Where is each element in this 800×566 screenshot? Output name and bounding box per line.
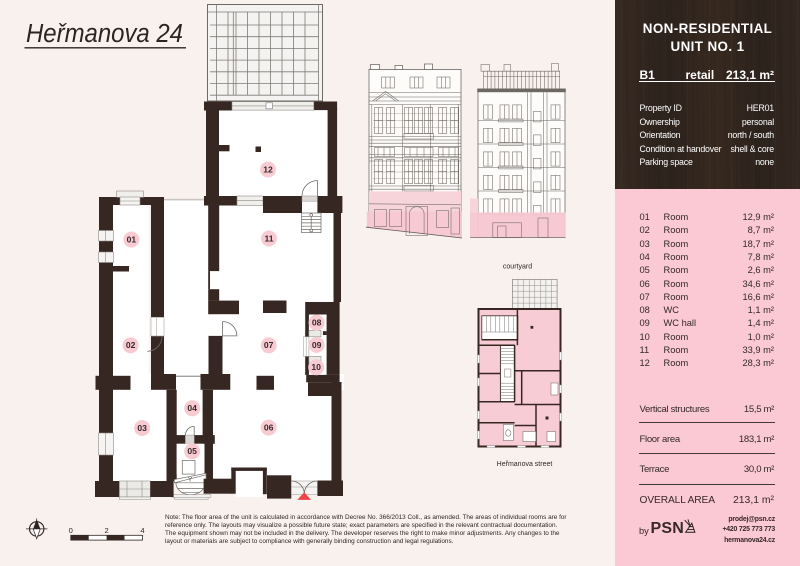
svg-text:03: 03	[137, 423, 147, 433]
svg-text:Heřmanova 24: Heřmanova 24	[26, 20, 183, 48]
svg-text:4: 4	[140, 526, 144, 535]
svg-text:05: 05	[187, 446, 197, 456]
svg-text:2: 2	[104, 526, 108, 535]
svg-text:12: 12	[263, 164, 273, 174]
svg-text:09: 09	[312, 340, 322, 350]
svg-text:Y: Y	[188, 477, 193, 484]
svg-text:04: 04	[187, 403, 197, 413]
svg-text:08: 08	[312, 318, 322, 328]
svg-text:Heřmanova street: Heřmanova street	[497, 461, 553, 468]
svg-text:02: 02	[126, 340, 136, 350]
svg-text:01: 01	[127, 234, 137, 244]
svg-text:10: 10	[311, 362, 321, 372]
svg-text:courtyard: courtyard	[503, 264, 532, 271]
svg-text:06: 06	[264, 423, 274, 433]
svg-text:07: 07	[264, 340, 274, 350]
svg-text:11: 11	[264, 233, 273, 243]
svg-text:0: 0	[69, 526, 73, 535]
